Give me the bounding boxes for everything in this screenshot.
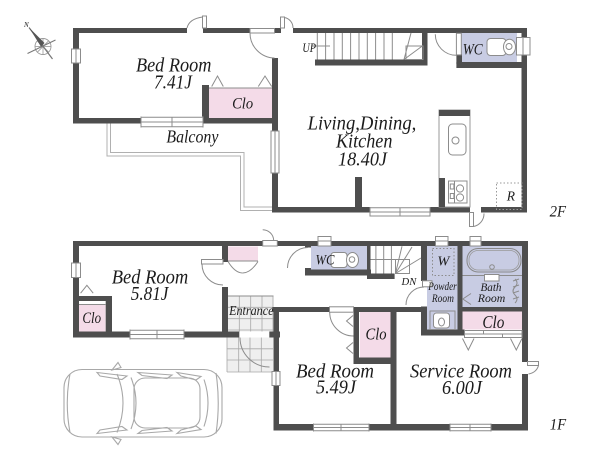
svg-text:Room: Room — [431, 293, 454, 305]
svg-text:W: W — [437, 254, 450, 269]
svg-text:R: R — [506, 189, 516, 204]
svg-text:Clo: Clo — [82, 310, 101, 327]
svg-text:1F: 1F — [550, 417, 567, 434]
svg-text:DN: DN — [400, 277, 417, 288]
svg-text:WC: WC — [316, 253, 336, 269]
svg-text:Clo: Clo — [482, 312, 504, 332]
svg-text:Entrance: Entrance — [228, 303, 273, 318]
svg-text:Clo: Clo — [366, 325, 387, 344]
svg-text:Powder: Powder — [428, 281, 458, 293]
svg-text:6.00J: 6.00J — [442, 377, 483, 399]
svg-text:Room: Room — [477, 291, 506, 305]
svg-text:UP: UP — [302, 41, 316, 55]
svg-text:7.41J: 7.41J — [154, 72, 193, 94]
svg-text:5.49J: 5.49J — [316, 377, 357, 399]
svg-text:Balcony: Balcony — [166, 127, 218, 147]
svg-text:5.81J: 5.81J — [131, 283, 169, 305]
svg-text:N: N — [23, 21, 29, 29]
svg-text:WC: WC — [463, 42, 483, 59]
svg-text:2F: 2F — [550, 204, 567, 221]
svg-text:Clo: Clo — [232, 96, 253, 113]
svg-text:18.40J: 18.40J — [338, 149, 388, 171]
